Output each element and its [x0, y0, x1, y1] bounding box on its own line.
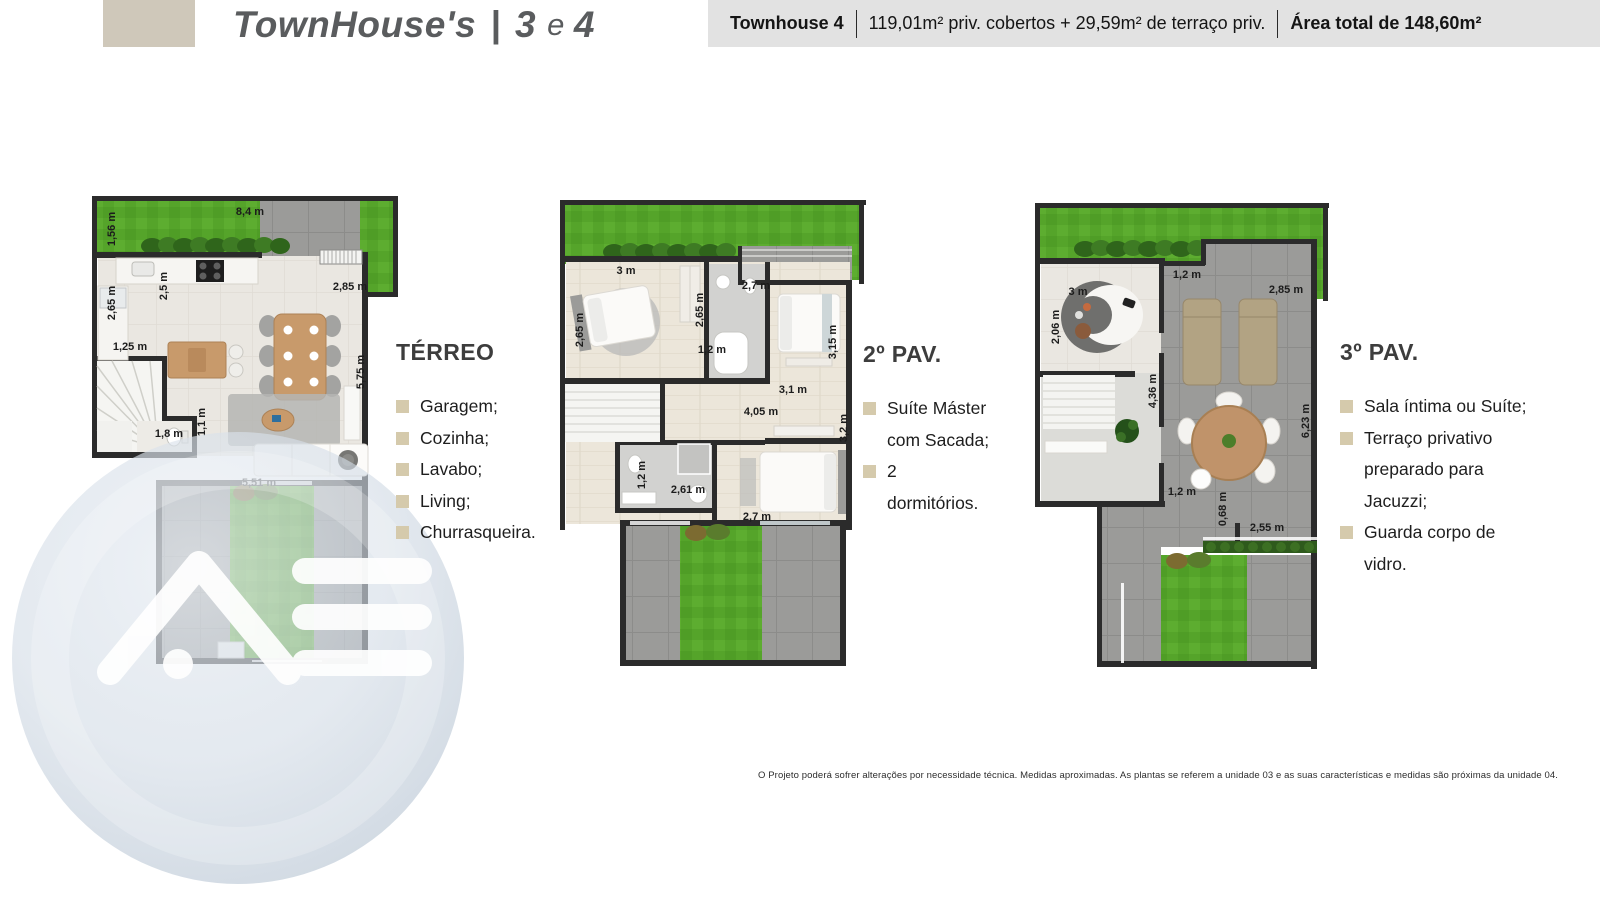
feature-text: Living; [420, 491, 471, 511]
measurement-label: 2,55 m [1250, 522, 1284, 534]
dining-table [259, 314, 341, 400]
feature-text: Churrasqueira. [420, 522, 536, 542]
measurement-label: 2,65 m [694, 293, 706, 327]
feature-text: Sala íntima ou Suíte; [1364, 396, 1526, 416]
measurement-label: 2,06 m [1050, 310, 1062, 344]
backyard-view [626, 524, 840, 660]
page: TownHouse's | 3 e 4 Townhouse 4 119,01m²… [0, 0, 1600, 899]
plan-heading-3pav: 3º PAV. [1340, 339, 1535, 366]
measurement-label: 6,23 m [1300, 404, 1312, 438]
measurement-label: 2,61 m [671, 484, 705, 496]
measurement-label: 1,56 m [106, 212, 118, 246]
feature-item: 2 dormitórios. [863, 456, 991, 519]
measurement-label: 2,85 m [1269, 284, 1303, 296]
disclaimer-text: O Projeto poderá sofrer alterações por n… [758, 770, 1558, 781]
feature-text: Lavabo; [420, 459, 482, 479]
feature-item: Suíte Máster com Sacada; [863, 393, 991, 456]
feature-text: 2 dormitórios. [887, 461, 978, 513]
measurement-label: 1,1 m [196, 408, 208, 436]
backyard [162, 484, 362, 662]
page-title: TownHouse's | 3 e 4 [233, 0, 597, 50]
feature-list: Sala íntima ou Suíte; Terraço privativo … [1340, 391, 1535, 580]
measurement-label: 3 m [617, 265, 636, 277]
measurement-label: 4,05 m [744, 406, 778, 418]
header-bar: Townhouse 4 119,01m² priv. cobertos + 29… [708, 0, 1600, 47]
floorplan-2pav: 3 m 2,65 m 2,65 m 1,2 m 2,7 m 3,15 m 3,1… [560, 200, 868, 674]
floorplan-2pav-drawing [560, 200, 868, 674]
measurement-label: 2,85 m [333, 281, 367, 293]
measurement-label: 1,8 m [155, 428, 183, 440]
feature-item: Terraço privativo preparado para Jacuzzi… [1340, 423, 1535, 518]
feature-text: Terraço privativo preparado para Jacuzzi… [1364, 428, 1492, 511]
unit-name: Townhouse 4 [730, 13, 844, 34]
title-number-3: 3 [515, 4, 536, 46]
measurement-label: 3 m [1069, 286, 1088, 298]
feature-text: Guarda corpo de vidro. [1364, 522, 1495, 574]
measurement-label: 1,2 m [1173, 269, 1201, 281]
title-separator: | [490, 4, 501, 46]
bullet-icon [396, 432, 409, 445]
living-room [228, 386, 368, 476]
measurement-label: 0,68 m [1217, 492, 1229, 526]
stairs [565, 384, 660, 442]
bullet-icon [863, 465, 876, 478]
bullet-icon [1340, 432, 1353, 445]
feature-text: Cozinha; [420, 428, 489, 448]
bullet-icon [1340, 526, 1353, 539]
feature-item: Garagem; [396, 391, 531, 423]
unit-areas: 119,01m² priv. cobertos + 29,59m² de ter… [869, 13, 1266, 34]
measurement-label: 8,4 m [236, 206, 264, 218]
brand-block [103, 0, 195, 47]
measurement-label: 2,7 m [742, 280, 770, 292]
panel-3pav: 3º PAV. Sala íntima ou Suíte; Terraço pr… [1340, 339, 1535, 580]
measurement-label: 2,65 m [574, 313, 586, 347]
measurement-label: 5,51 m [242, 477, 276, 489]
feature-item: Sala íntima ou Suíte; [1340, 391, 1535, 423]
garage-door [320, 250, 362, 264]
measurement-label: 3,15 m [827, 325, 839, 359]
bullet-icon [863, 402, 876, 415]
feature-item: Guarda corpo de vidro. [1340, 517, 1535, 580]
measurement-label: 3,2 m [838, 414, 850, 442]
bullet-icon [396, 400, 409, 413]
bullet-icon [396, 526, 409, 539]
floorplan-3pav: 1,2 m 3 m 2,85 m 2,06 m 4,36 m 6,23 m 1,… [1035, 203, 1331, 675]
glass-guard-planter [1203, 537, 1317, 553]
panel-terreo: TÉRREO Garagem; Cozinha; Lavabo; Living;… [396, 339, 531, 549]
plan-heading-2pav: 2º PAV. [863, 341, 991, 368]
title-number-4: 4 [574, 4, 595, 46]
bedroom-2 [740, 450, 846, 514]
feature-item: Cozinha; [396, 423, 531, 455]
panel-2pav: 2º PAV. Suíte Máster com Sacada; 2 dormi… [863, 341, 991, 519]
measurement-label: 2,5 m [158, 272, 170, 300]
measurement-label: 2,65 m [106, 286, 118, 320]
bullet-icon [396, 463, 409, 476]
bullet-icon [1340, 400, 1353, 413]
floorplan-terreo: 8,4 m 1,56 m 2,5 m 2,65 m 1,25 m 2,85 m … [92, 196, 400, 668]
measurement-label: 1,25 m [113, 341, 147, 353]
measurement-label: 4,36 m [1147, 374, 1159, 408]
bullet-icon [396, 495, 409, 508]
feature-item: Churrasqueira. [396, 517, 531, 549]
hedge-row [141, 237, 290, 254]
floorplan-terreo-drawing [92, 196, 400, 668]
measurement-label: 1,2 m [698, 344, 726, 356]
measurement-label: 1,2 m [1168, 486, 1196, 498]
feature-text: Garagem; [420, 396, 498, 416]
measurement-label: 3,1 m [779, 384, 807, 396]
header-separator [1277, 10, 1278, 38]
header-separator [856, 10, 857, 38]
feature-item: Lavabo; [396, 454, 531, 486]
plan-heading-terreo: TÉRREO [396, 339, 531, 366]
measurement-label: 5,75 m [355, 355, 367, 389]
feature-list: Garagem; Cozinha; Lavabo; Living; Churra… [396, 391, 531, 549]
unit-total-area: Área total de 148,60m² [1290, 13, 1481, 34]
feature-item: Living; [396, 486, 531, 518]
measurement-label: 2,7 m [743, 511, 771, 523]
title-name: TownHouse's [233, 4, 476, 46]
measurement-label: 1,2 m [636, 461, 648, 489]
feature-list: Suíte Máster com Sacada; 2 dormitórios. [863, 393, 991, 519]
feature-text: Suíte Máster com Sacada; [887, 398, 989, 450]
title-conjunction: e [547, 7, 565, 43]
